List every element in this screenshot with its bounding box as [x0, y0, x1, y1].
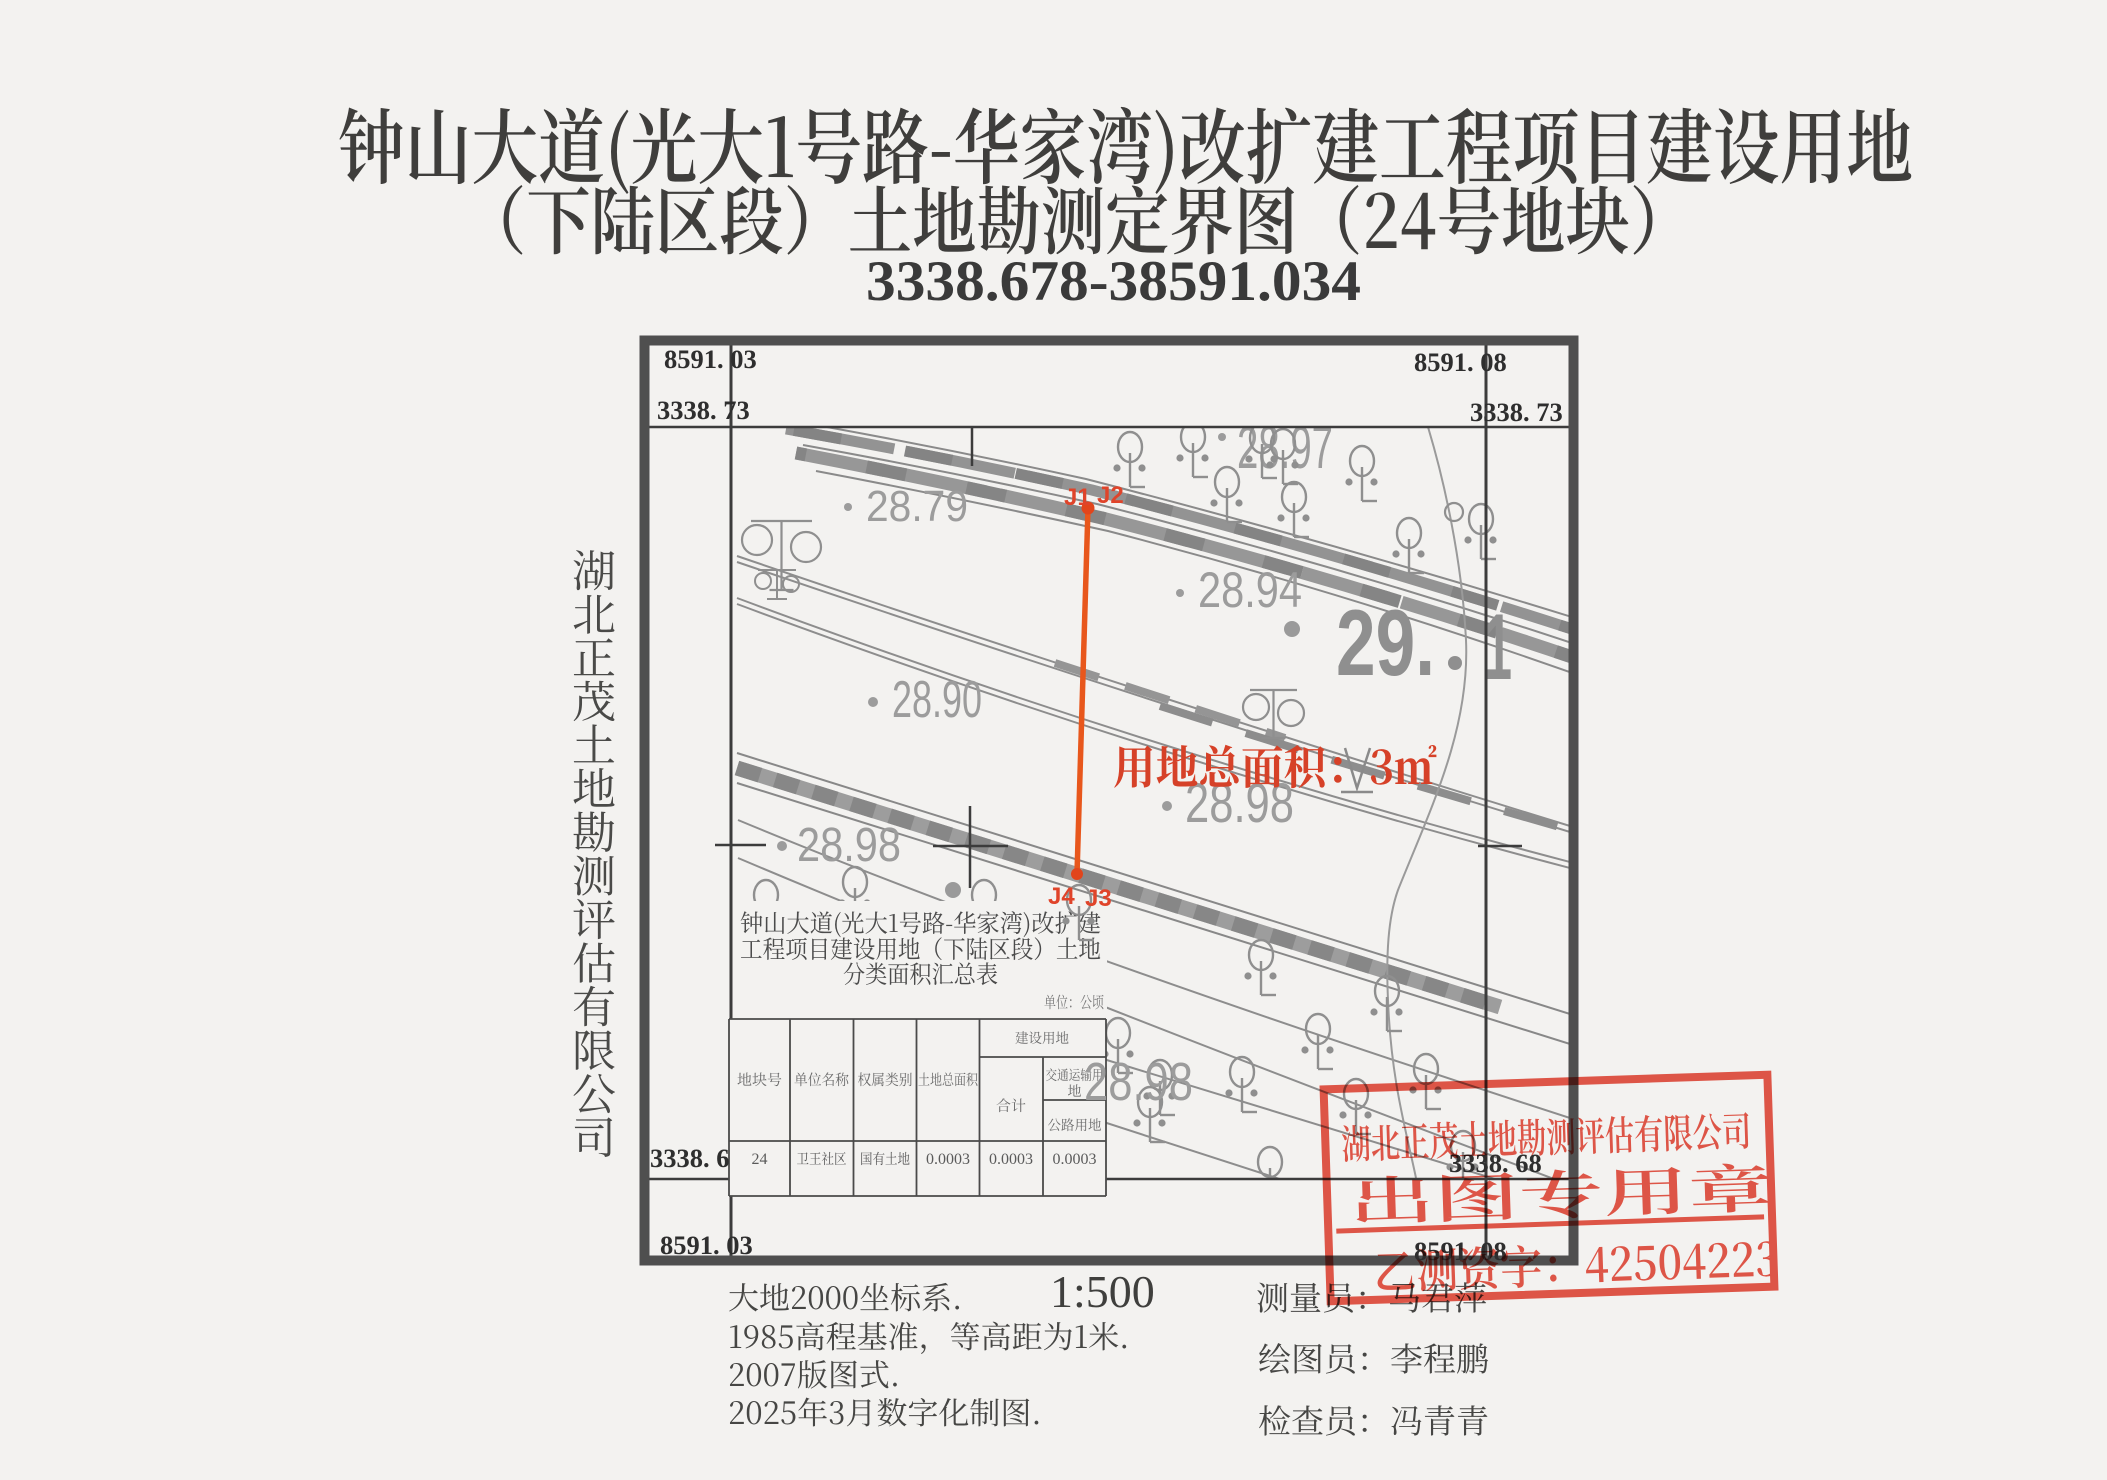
- svg-text:0.0003: 0.0003: [926, 1151, 970, 1168]
- svg-text:28.79: 28.79: [866, 482, 968, 531]
- svg-text:J2: J2: [1097, 482, 1124, 509]
- svg-text:3338.678-38591.034: 3338.678-38591.034: [866, 250, 1361, 313]
- svg-text:0.0003: 0.0003: [1053, 1151, 1097, 1168]
- svg-text:J1: J1: [1064, 484, 1091, 511]
- svg-text:1: 1: [1484, 594, 1512, 699]
- svg-text:8591. 08: 8591. 08: [1414, 347, 1507, 377]
- svg-text:28.98: 28.98: [1084, 1052, 1193, 1112]
- svg-text:28.98: 28.98: [797, 819, 901, 872]
- svg-text:0.0003: 0.0003: [989, 1151, 1033, 1168]
- svg-text:28.90: 28.90: [892, 671, 982, 729]
- svg-text:1:500: 1:500: [1050, 1266, 1155, 1317]
- svg-text:3338. 73: 3338. 73: [1470, 397, 1563, 427]
- svg-text:29.: 29.: [1336, 590, 1435, 695]
- svg-text:24: 24: [752, 1151, 768, 1168]
- svg-text:J3: J3: [1085, 885, 1112, 912]
- svg-text:8591. 03: 8591. 03: [660, 1230, 753, 1260]
- svg-text:8591. 03: 8591. 03: [664, 344, 757, 374]
- svg-text:28.94: 28.94: [1198, 562, 1302, 618]
- svg-text:3338. 73: 3338. 73: [657, 395, 750, 425]
- svg-text:3338. 6: 3338. 6: [650, 1143, 730, 1173]
- svg-text:J4: J4: [1048, 883, 1075, 910]
